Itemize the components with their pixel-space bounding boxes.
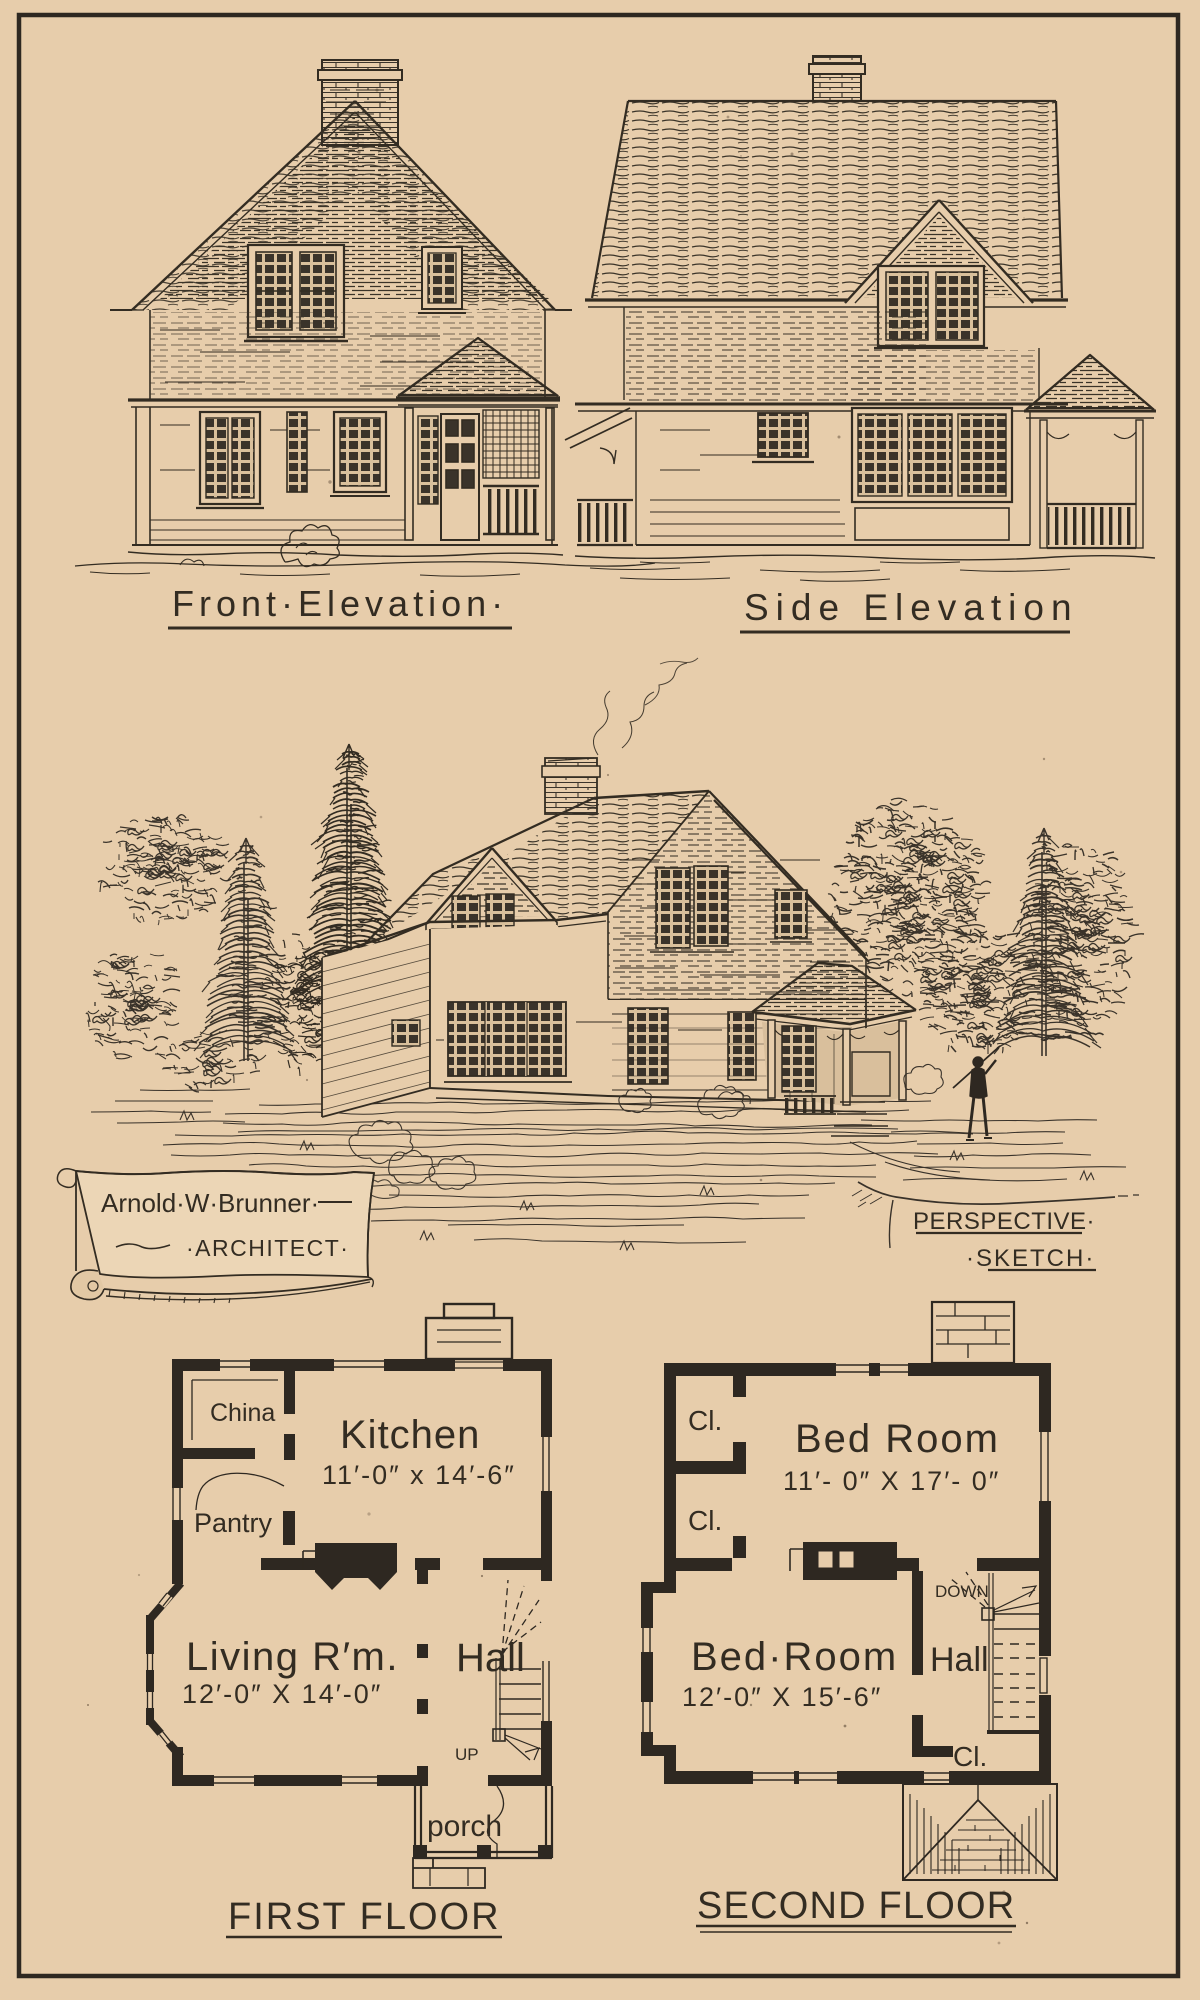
svg-text:FIRST FLOOR: FIRST FLOOR: [228, 1896, 501, 1938]
svg-text:Front·Elevation·: Front·Elevation·: [172, 583, 508, 624]
svg-text:SECOND FLOOR: SECOND FLOOR: [697, 1885, 1015, 1927]
svg-text:·ARCHITECT·: ·ARCHITECT·: [186, 1235, 349, 1261]
svg-text:Hall: Hall: [930, 1641, 989, 1679]
svg-text:China: China: [210, 1399, 275, 1427]
svg-text:Arnold·W·Brunner·: Arnold·W·Brunner·: [101, 1188, 319, 1218]
svg-text:Cl.: Cl.: [688, 1505, 722, 1536]
svg-text:Kitchen: Kitchen: [340, 1413, 480, 1457]
svg-text:Side Elevation: Side Elevation: [744, 587, 1079, 628]
svg-text:UP: UP: [455, 1745, 479, 1764]
svg-text:11′- 0″ X 17′- 0″: 11′- 0″ X 17′- 0″: [783, 1466, 1000, 1496]
svg-text:12′-0″ X 14′-0″: 12′-0″ X 14′-0″: [182, 1679, 382, 1709]
svg-text:11′-0″ x 14′-6″: 11′-0″ x 14′-6″: [322, 1460, 516, 1490]
svg-text:Living R′m.: Living R′m.: [186, 1635, 399, 1679]
svg-text:PERSPECTIVE·: PERSPECTIVE·: [913, 1208, 1095, 1235]
svg-text:DOWN: DOWN: [935, 1582, 989, 1601]
svg-text:·SKETCH·: ·SKETCH·: [966, 1245, 1095, 1272]
svg-text:Bed Room: Bed Room: [795, 1417, 1000, 1461]
svg-text:Cl.: Cl.: [688, 1405, 722, 1436]
svg-text:Hall: Hall: [456, 1636, 525, 1680]
svg-text:porch: porch: [427, 1810, 502, 1843]
svg-text:12′-0″ X 15′-6″: 12′-0″ X 15′-6″: [682, 1682, 882, 1712]
svg-text:Cl.: Cl.: [953, 1741, 987, 1772]
svg-text:Pantry: Pantry: [194, 1508, 273, 1538]
svg-text:Bed·Room: Bed·Room: [691, 1635, 898, 1679]
